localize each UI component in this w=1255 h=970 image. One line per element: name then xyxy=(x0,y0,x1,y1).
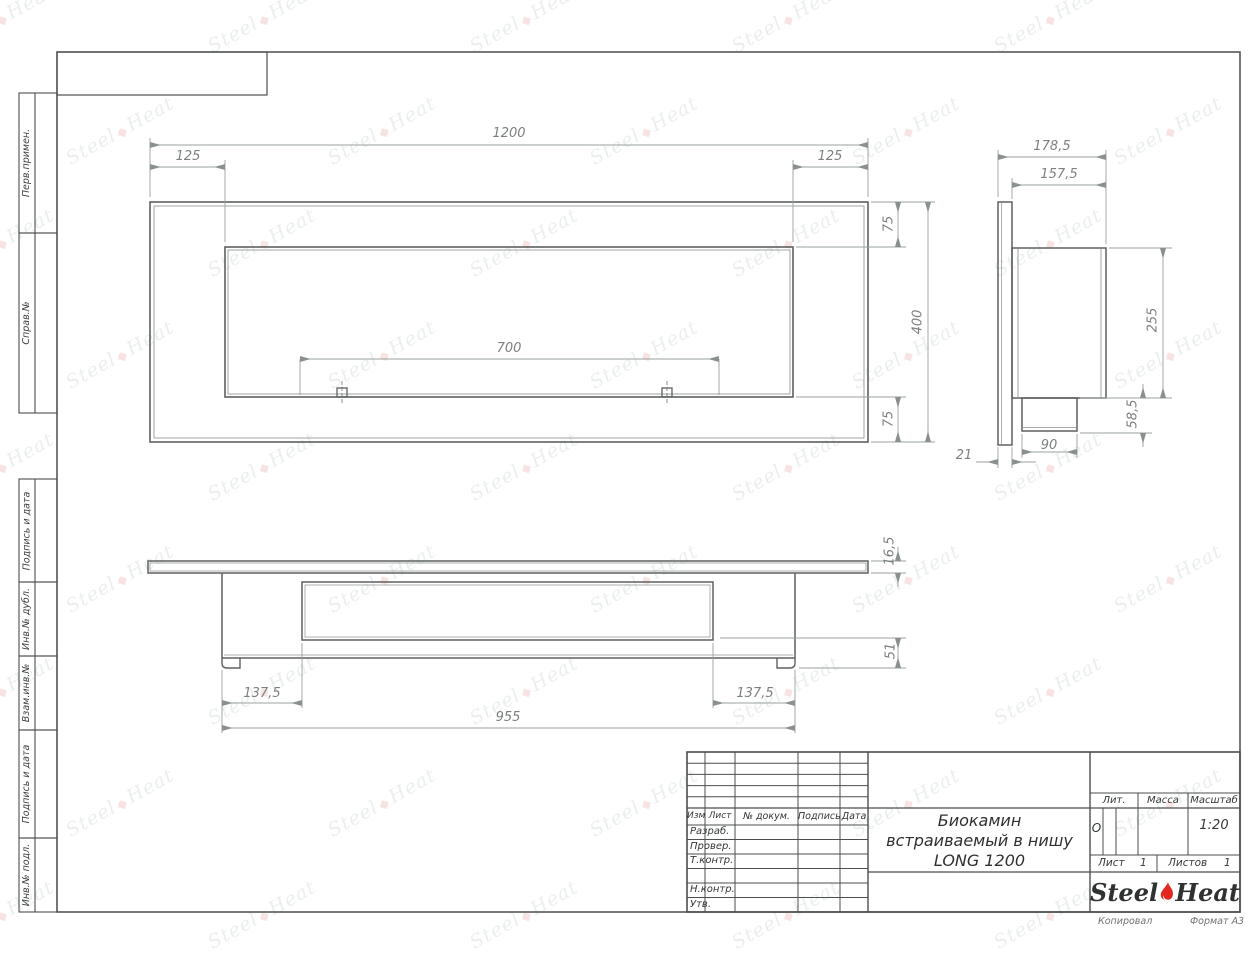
foot-right xyxy=(777,658,795,668)
dim-front-burner: 700 xyxy=(497,341,522,356)
tb-row-approved: Утв. xyxy=(690,898,734,913)
dim-bottom-inset-right: 137,5 xyxy=(736,686,773,701)
dim-side-flange: 21 xyxy=(956,448,973,463)
dim-front-inset-left: 125 xyxy=(176,149,201,164)
tb-row-ncontrol: Н.контр. xyxy=(690,883,734,898)
tb-scale-value: 1:20 xyxy=(1188,808,1240,855)
footer-format: Формат А3 xyxy=(1190,916,1244,927)
margin-label-sprav-no: Справ.№ xyxy=(20,233,34,413)
dim-side-tray-width: 90 xyxy=(1041,438,1058,453)
dim-front-bottom: 75 xyxy=(882,411,897,428)
title-line-3: LONG 1200 xyxy=(934,851,1025,871)
burner-clip-right xyxy=(662,381,672,404)
flame-icon xyxy=(1159,878,1174,905)
tb-col-doc: № докум. xyxy=(735,808,798,825)
front-view xyxy=(150,202,868,442)
drawing-sheet: { "frame": { "left_labels": ["Перв.приме… xyxy=(0,0,1255,970)
tb-sheets-num: 1 xyxy=(1224,855,1238,872)
tb-col-izm: Изм. xyxy=(687,808,705,825)
dim-front-inset-right: 125 xyxy=(818,149,843,164)
tb-lit-label: Лит. xyxy=(1090,793,1138,808)
foot-left xyxy=(222,658,240,668)
dim-bottom-flange: 16,5 xyxy=(883,537,898,566)
tb-scale-label: Масштаб xyxy=(1188,793,1240,808)
title-line-1: Биокамин xyxy=(938,811,1022,831)
drawing-title: Биокамин встраиваемый в нишу LONG 1200 xyxy=(869,809,1090,872)
margin-label-perv-primen: Перв.примен. xyxy=(20,93,34,233)
tb-row-developed: Разраб. xyxy=(690,825,734,840)
dim-side-body-height: 255 xyxy=(1146,308,1161,333)
margin-label-vzam-inv: Взам.инв.№ xyxy=(20,656,34,730)
side-view xyxy=(998,202,1106,445)
burner-clip-left xyxy=(337,381,347,404)
tb-row-checked: Провер. xyxy=(690,840,734,855)
dim-side-depth-total: 178,5 xyxy=(1033,139,1070,154)
tb-col-date: Дата xyxy=(840,808,868,825)
dim-side-depth-body: 157,5 xyxy=(1040,167,1077,182)
title-line-2: встраиваемый в нишу xyxy=(886,831,1073,851)
dim-front-width: 1200 xyxy=(492,126,525,141)
tb-col-list: Лист xyxy=(705,808,735,825)
margin-label-inv-dubl: Инв.№ дубл. xyxy=(20,582,34,656)
logo-steel-text: Steel xyxy=(1090,878,1158,907)
dim-bottom-body-width: 955 xyxy=(496,710,521,725)
dim-front-height: 400 xyxy=(911,310,926,335)
margin-label-podpis-data-2: Подпись и дата xyxy=(20,730,34,838)
tb-lit-value: О xyxy=(1090,808,1103,855)
dimension-lines xyxy=(150,138,1172,733)
dim-side-tray-height: 58,5 xyxy=(1126,400,1141,429)
tb-sheet-label: Лист xyxy=(1098,855,1134,872)
dim-bottom-inset-left: 137,5 xyxy=(243,686,280,701)
tb-col-sign: Подпись xyxy=(798,808,840,825)
steelheat-logo: Steel Heat xyxy=(1090,873,1240,912)
margin-label-inv-podl: Инв.№ подл. xyxy=(20,838,34,912)
tb-sheet-num: 1 xyxy=(1140,855,1154,872)
tb-sheets-label: Листов xyxy=(1168,855,1212,872)
bottom-view xyxy=(148,561,868,668)
dim-front-top: 75 xyxy=(882,216,897,233)
footer-copied: Копировал xyxy=(1098,916,1152,927)
tb-mass-label: Масса xyxy=(1138,793,1188,808)
dim-bottom-body: 51 xyxy=(884,643,899,660)
tb-row-tcontrol: Т.контр. xyxy=(690,854,734,869)
logo-heat-text: Heat xyxy=(1175,878,1240,907)
margin-label-podpis-data-1: Подпись и дата xyxy=(21,480,35,583)
